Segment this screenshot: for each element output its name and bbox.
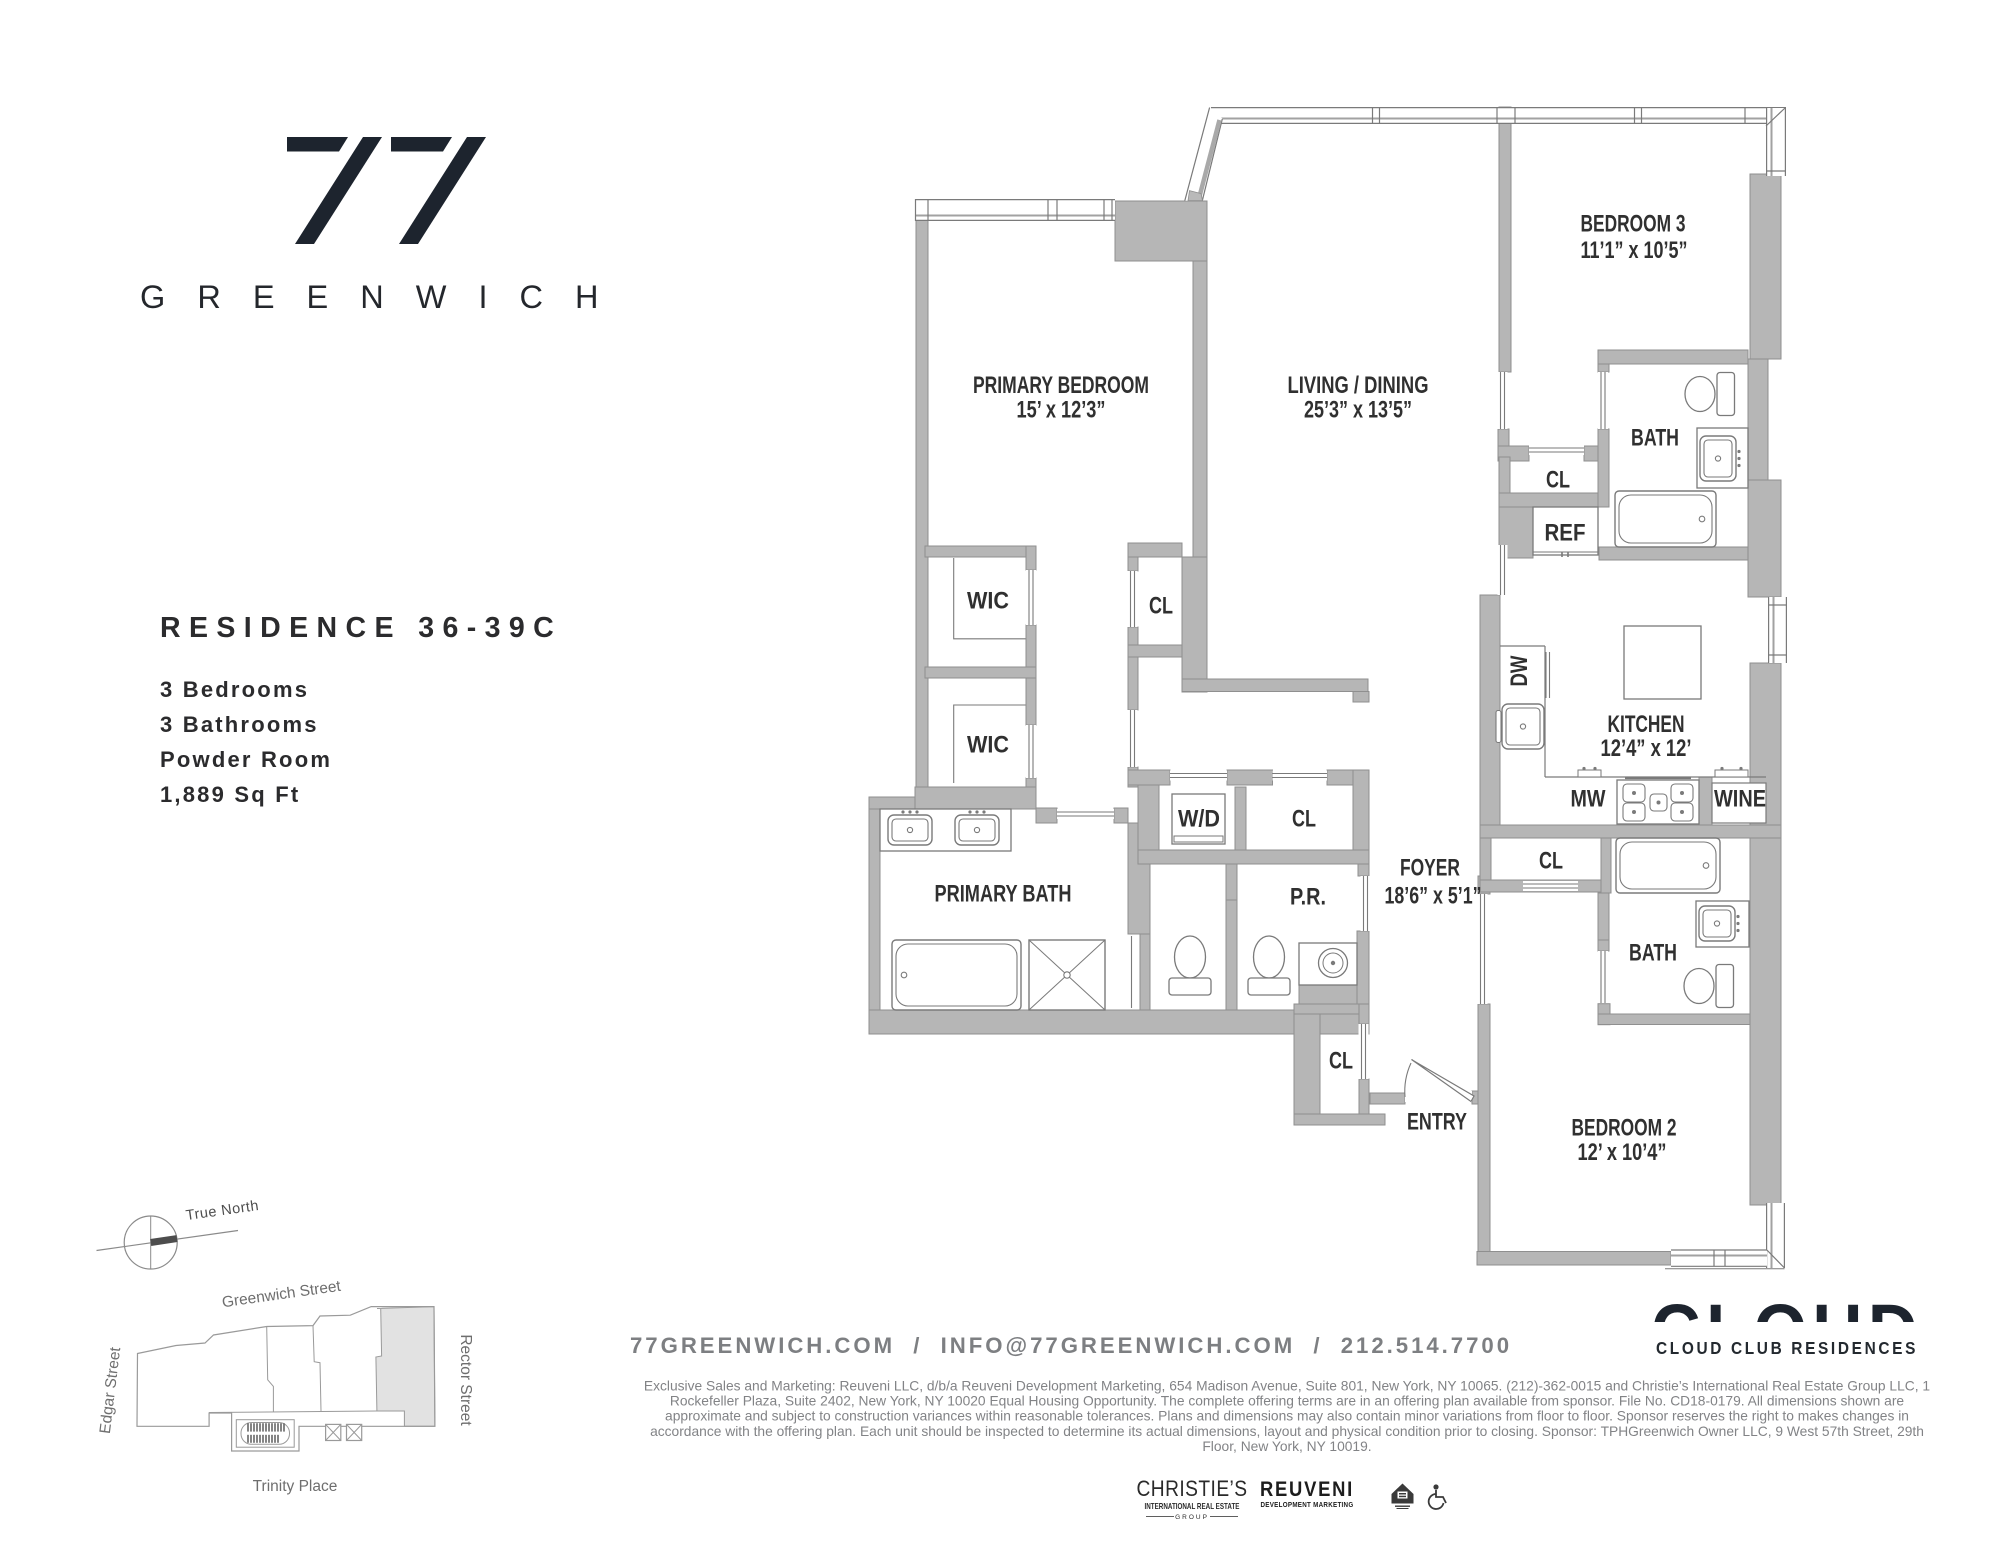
svg-text:Rector Street: Rector Street xyxy=(457,1334,474,1426)
svg-text:G R E E N W I C H: G R E E N W I C H xyxy=(140,279,610,315)
svg-text:BATH: BATH xyxy=(1629,940,1677,967)
svg-text:Trinity Place: Trinity Place xyxy=(253,1478,338,1495)
svg-text:1,889 Sq Ft: 1,889 Sq Ft xyxy=(160,782,300,807)
svg-text:Powder Room: Powder Room xyxy=(160,747,332,772)
svg-text:12’ x 10’4”: 12’ x 10’4” xyxy=(1578,1139,1667,1166)
svg-text:PRIMARY BATH: PRIMARY BATH xyxy=(935,881,1072,908)
svg-text:WIC: WIC xyxy=(967,588,1009,615)
svg-text:GROUP: GROUP xyxy=(1175,1514,1209,1521)
svg-text:Floor, New York, NY 10019.: Floor, New York, NY 10019. xyxy=(1202,1439,1371,1454)
svg-text:CL: CL xyxy=(1329,1048,1353,1075)
svg-text:CLOUD CLUB RESIDENCES: CLOUD CLUB RESIDENCES xyxy=(1656,1338,1918,1358)
svg-text:MW: MW xyxy=(1571,786,1607,813)
svg-text:25’3” x 13’5”: 25’3” x 13’5” xyxy=(1304,397,1412,424)
svg-text:PRIMARY BEDROOM: PRIMARY BEDROOM xyxy=(973,372,1149,399)
svg-text:P.R.: P.R. xyxy=(1290,884,1326,911)
svg-text:accordance with the offering p: accordance with the offering plan. Each … xyxy=(650,1424,1924,1439)
svg-text:ENTRY: ENTRY xyxy=(1407,1109,1467,1136)
svg-text:WIC: WIC xyxy=(967,732,1009,759)
svg-text:11’1” x 10’5”: 11’1” x 10’5” xyxy=(1581,237,1688,264)
svg-text:CL: CL xyxy=(1546,467,1570,494)
svg-text:15’ x 12’3”: 15’ x 12’3” xyxy=(1017,397,1106,424)
svg-text:REF: REF xyxy=(1545,520,1586,547)
svg-text:BEDROOM 2: BEDROOM 2 xyxy=(1572,1115,1677,1142)
svg-text:3 Bedrooms: 3 Bedrooms xyxy=(160,677,309,702)
svg-text:WINE: WINE xyxy=(1714,786,1766,813)
svg-text:CL: CL xyxy=(1539,848,1563,875)
svg-text:DW: DW xyxy=(1506,655,1533,687)
svg-text:RESIDENCE 36-39C: RESIDENCE 36-39C xyxy=(160,612,562,644)
svg-text:DEVELOPMENT MARKETING: DEVELOPMENT MARKETING xyxy=(1261,1502,1354,1509)
svg-text:CL: CL xyxy=(1292,806,1316,833)
svg-text:LIVING / DINING: LIVING / DINING xyxy=(1288,372,1429,399)
svg-text:CHRISTIE’S: CHRISTIE’S xyxy=(1137,1476,1248,1501)
svg-text:12’4” x 12’: 12’4” x 12’ xyxy=(1601,735,1692,762)
svg-text:approximate and subject to con: approximate and subject to construction … xyxy=(665,1409,1909,1424)
svg-text:Exclusive Sales and Marketing:: Exclusive Sales and Marketing: Reuveni L… xyxy=(644,1379,1930,1394)
svg-text:3 Bathrooms: 3 Bathrooms xyxy=(160,712,319,737)
svg-text:REUVENI: REUVENI xyxy=(1260,1478,1354,1501)
svg-text:BATH: BATH xyxy=(1631,425,1679,452)
svg-text:18’6” x 5’1”: 18’6” x 5’1” xyxy=(1385,883,1482,910)
svg-text:BEDROOM 3: BEDROOM 3 xyxy=(1581,211,1686,238)
svg-text:FOYER: FOYER xyxy=(1400,855,1460,882)
svg-text:INTERNATIONAL REAL ESTATE: INTERNATIONAL REAL ESTATE xyxy=(1145,1501,1240,1511)
svg-text:CL: CL xyxy=(1149,593,1173,620)
svg-text:W/D: W/D xyxy=(1178,806,1220,833)
svg-text:KITCHEN: KITCHEN xyxy=(1608,711,1685,738)
svg-text:77GREENWICH.COM / INFO@77GRE: 77GREENWICH.COM / INFO@77GREENWICH.COM /… xyxy=(630,1333,1512,1358)
svg-text:Rockefeller Plaza, Suite 2402,: Rockefeller Plaza, Suite 2402, New York,… xyxy=(670,1394,1905,1409)
